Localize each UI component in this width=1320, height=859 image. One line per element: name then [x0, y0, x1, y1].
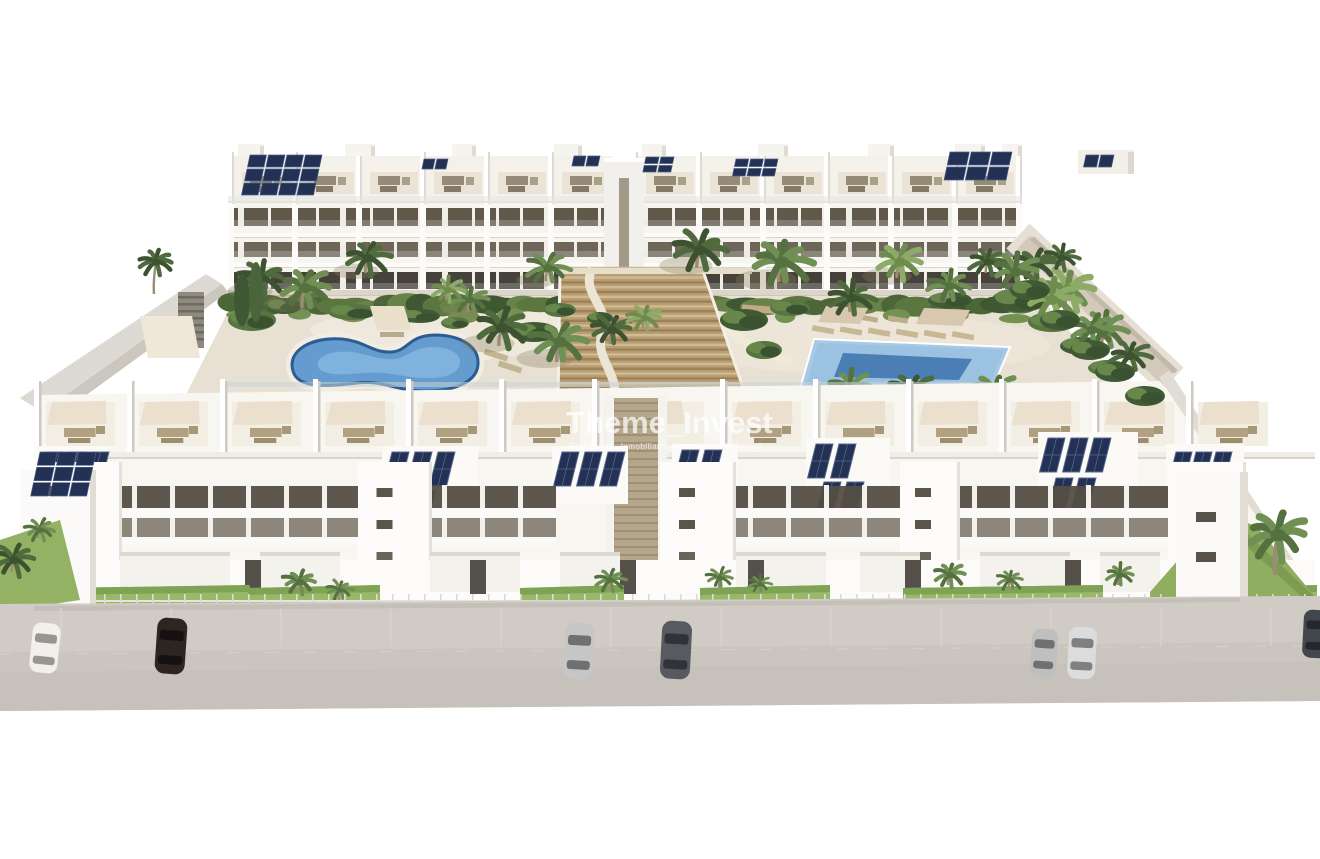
svg-text:Real Estate - Inmobiliaria - I: Real Estate - Inmobiliaria - Immobilien … — [569, 442, 761, 451]
svg-text:Theme_Invest: Theme_Invest — [566, 405, 773, 440]
